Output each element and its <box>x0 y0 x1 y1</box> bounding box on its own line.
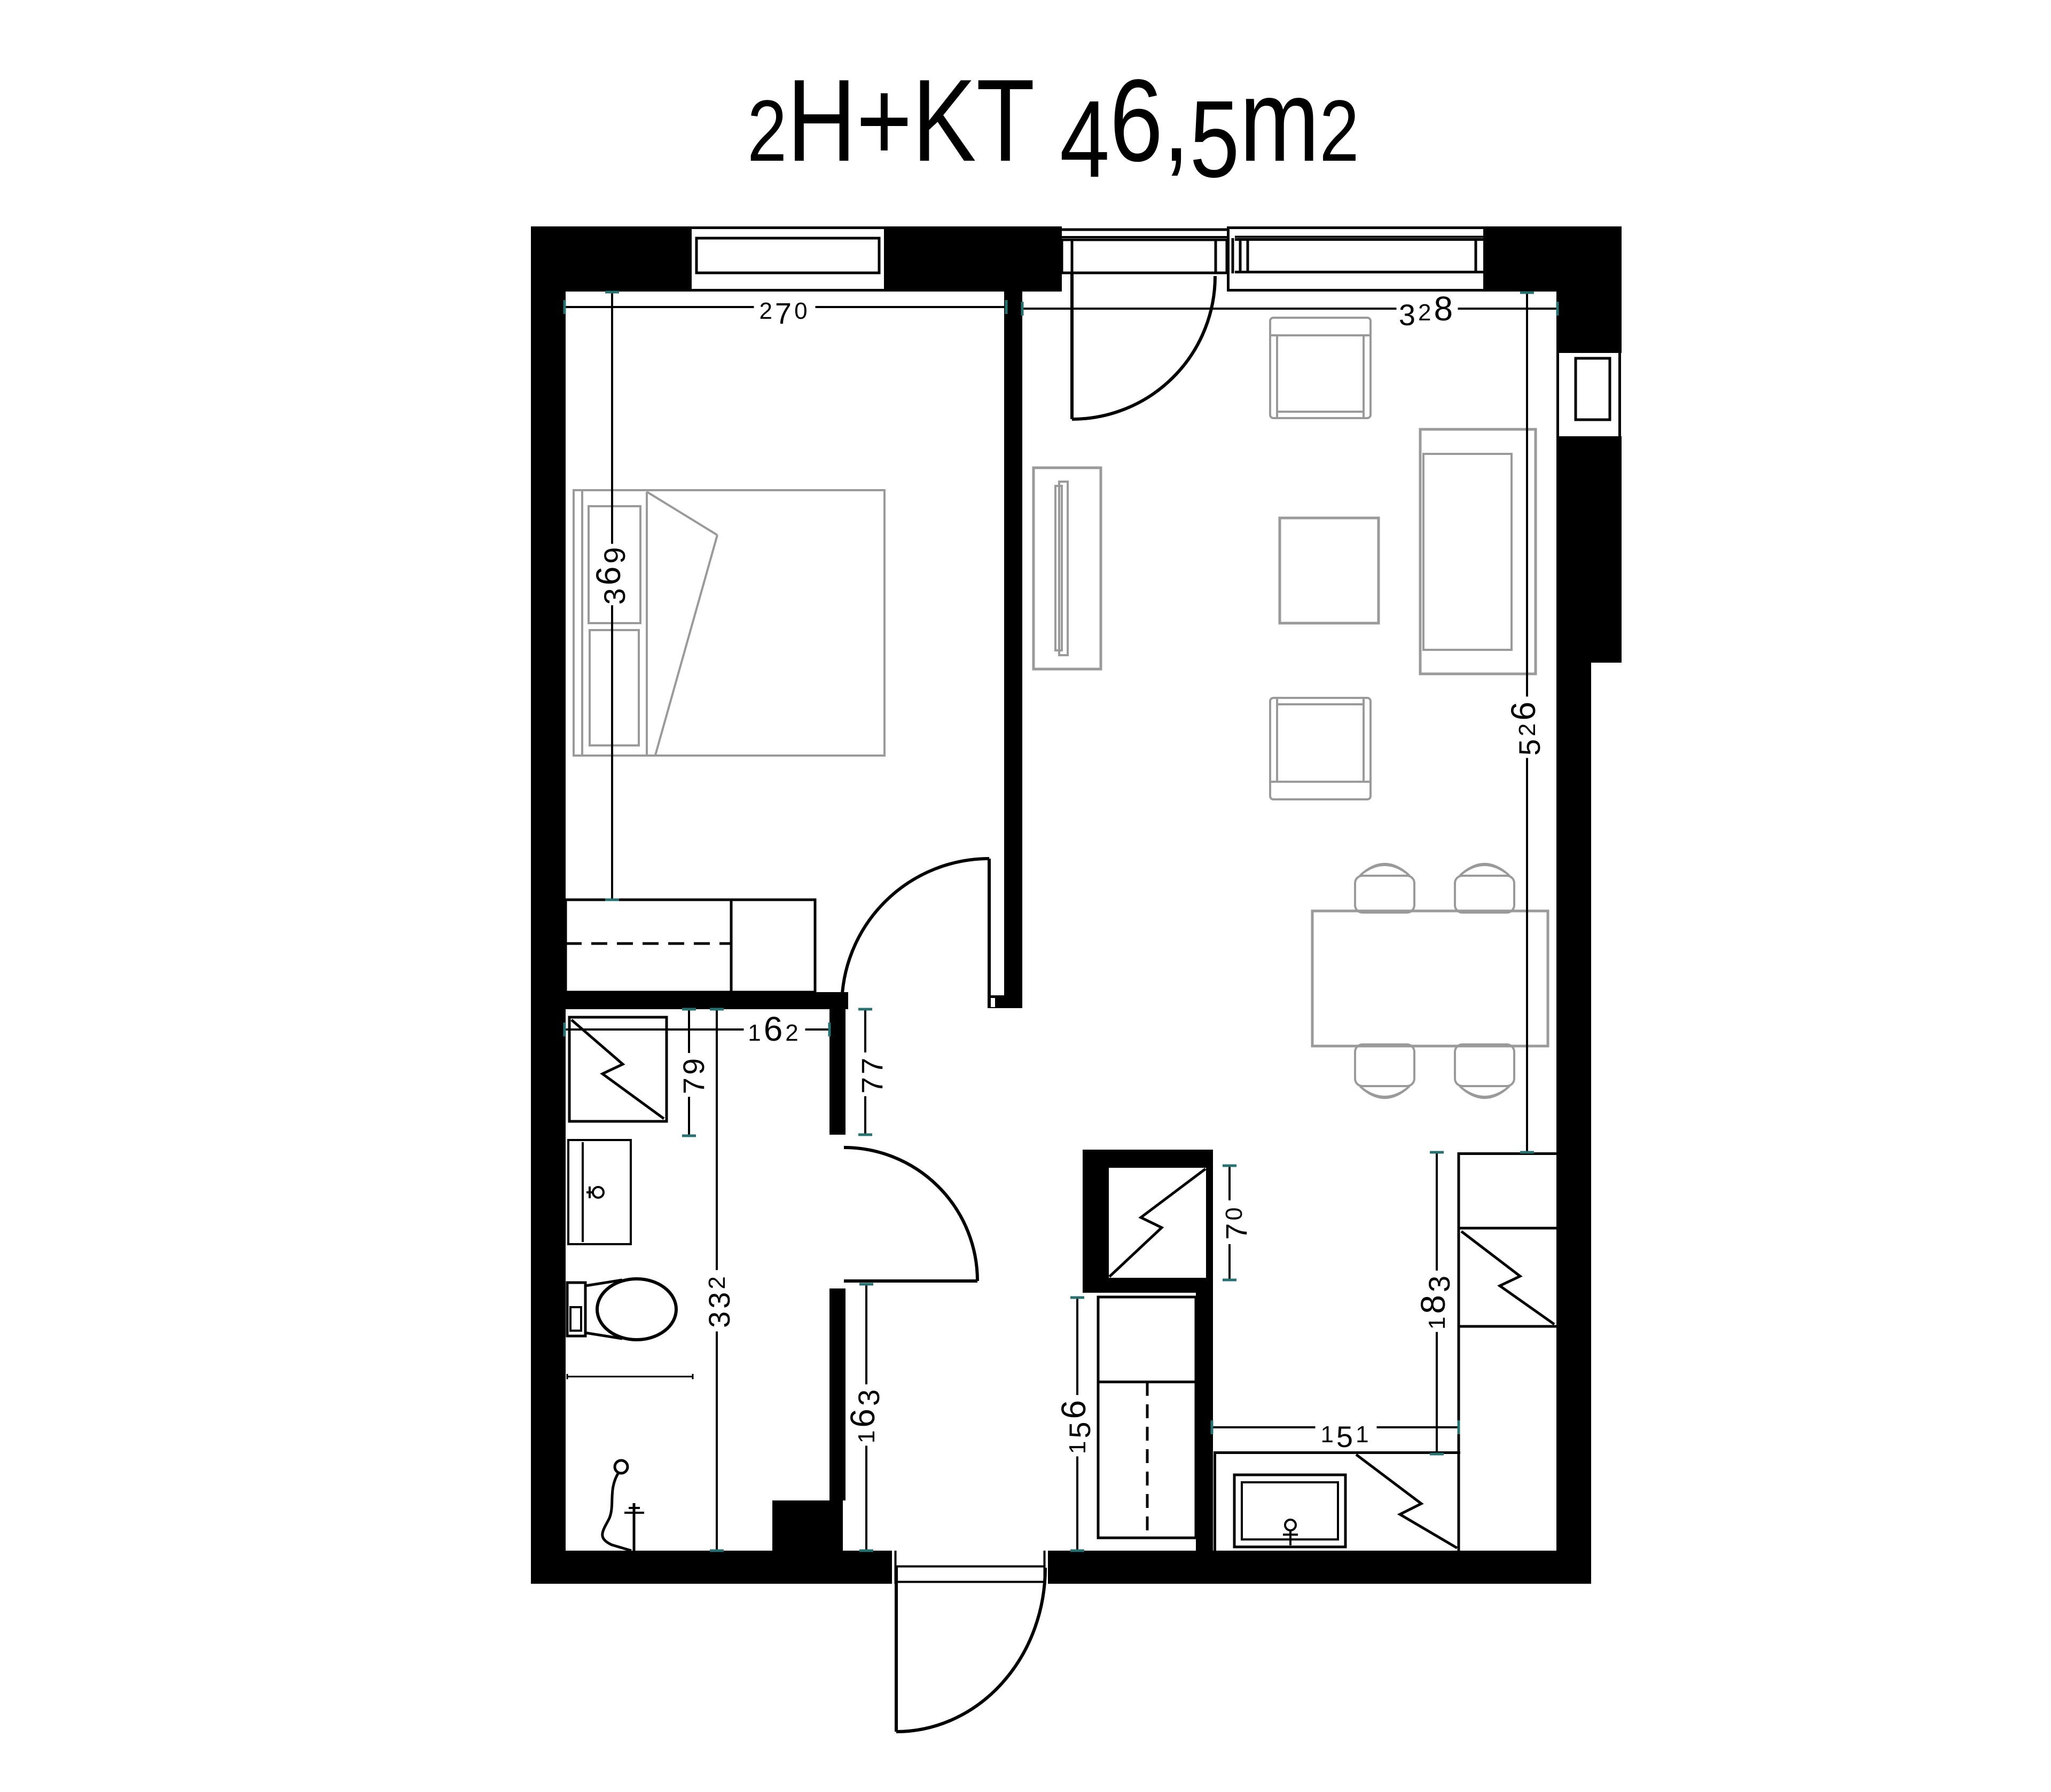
svg-text:77: 77 <box>855 1055 889 1094</box>
svg-text:2H+KT 46,5m2: 2H+KT 46,5m2 <box>747 56 1359 200</box>
svg-text:79: 79 <box>677 1056 710 1094</box>
